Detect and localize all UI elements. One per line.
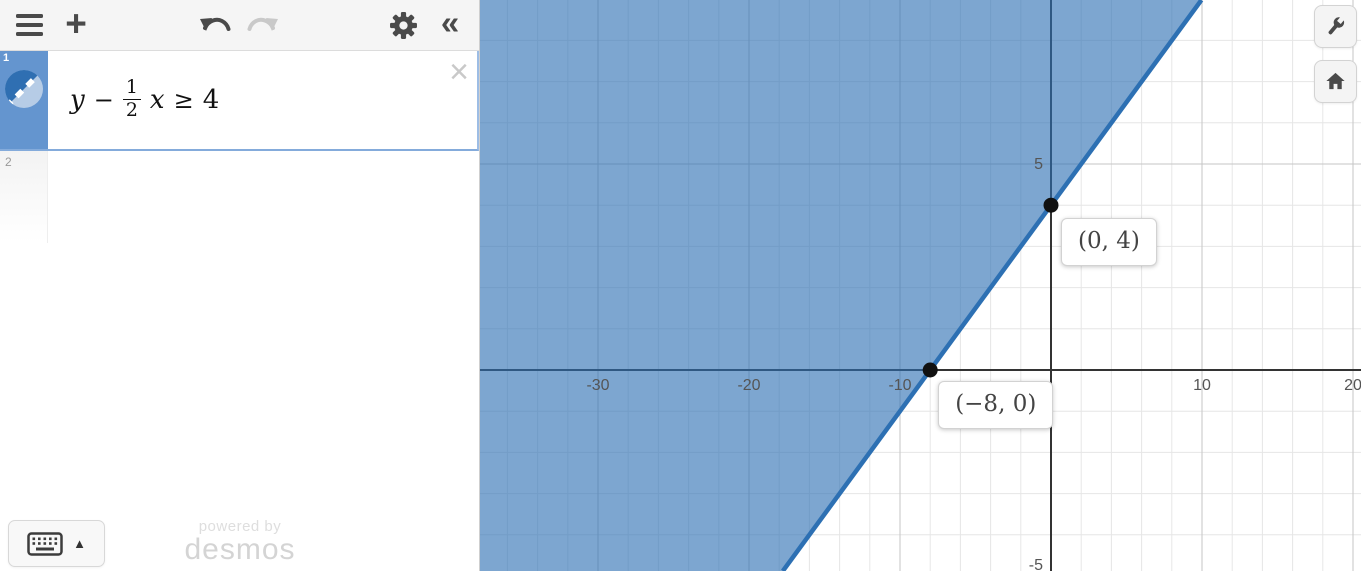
collapse-panel-button[interactable]: « xyxy=(427,0,473,50)
plus-icon: + xyxy=(65,5,87,42)
desmos-app: + xyxy=(0,0,1361,571)
axis-tick-label: -10 xyxy=(888,377,911,394)
expression-panel: + xyxy=(0,0,480,571)
menu-button[interactable] xyxy=(6,0,52,50)
var-x: x xyxy=(150,85,165,115)
chevron-double-left-icon: « xyxy=(441,6,459,39)
graph-region: -30-20-1010205-5 (−8, 0)(0, 4) xyxy=(480,0,1361,571)
expression-toolbar: + xyxy=(0,0,479,51)
axis-tick-label: -5 xyxy=(1029,557,1043,571)
axis-tick-label: -30 xyxy=(586,377,609,394)
hamburger-icon xyxy=(16,14,43,36)
keyboard-toggle-button[interactable]: ▲ xyxy=(8,520,105,567)
delete-expression-button[interactable]: × xyxy=(449,55,469,89)
rhs-value: 4 xyxy=(203,85,220,115)
undo-icon xyxy=(199,12,231,38)
expression-content[interactable]: y − 1 2 x ≥ 4 × xyxy=(48,51,477,149)
fraction-denominator: 2 xyxy=(126,100,138,121)
expression-index: 1 xyxy=(3,52,9,64)
add-expression-button[interactable]: + xyxy=(53,0,99,50)
inequality-style-icon[interactable] xyxy=(4,69,44,109)
settings-button[interactable] xyxy=(380,0,426,50)
graph-settings-button[interactable] xyxy=(1314,5,1357,48)
geq-sign: ≥ xyxy=(174,86,194,114)
expression-math[interactable]: y − 1 2 x ≥ 4 xyxy=(70,78,219,122)
inequality-region xyxy=(480,0,1201,571)
expression-row-1-gutter[interactable]: 1 xyxy=(0,51,48,149)
axis-tick-label: -20 xyxy=(737,377,760,394)
wrench-icon xyxy=(1324,15,1347,38)
watermark-desmos: desmos xyxy=(150,533,330,567)
graph-point[interactable] xyxy=(1044,198,1059,213)
expression-index: 2 xyxy=(5,155,12,169)
home-icon xyxy=(1324,70,1347,93)
fraction-numerator: 1 xyxy=(123,77,141,99)
fraction: 1 2 xyxy=(123,77,141,121)
graph-point[interactable] xyxy=(923,363,938,378)
graph-canvas[interactable]: -30-20-1010205-5 xyxy=(480,0,1361,571)
desmos-watermark: powered by desmos xyxy=(150,518,330,567)
axis-tick-label: 10 xyxy=(1193,377,1211,394)
expression-row-2-gutter: 2 xyxy=(0,151,48,243)
expression-row-2[interactable]: 2 xyxy=(0,151,479,243)
minus-sign: − xyxy=(94,86,114,114)
caret-up-icon: ▲ xyxy=(73,536,86,551)
watermark-powered-by: powered by xyxy=(150,518,330,535)
gear-icon xyxy=(389,11,418,40)
undo-button[interactable] xyxy=(192,0,238,50)
var-y: y xyxy=(70,85,85,115)
redo-button[interactable] xyxy=(240,0,286,50)
redo-icon xyxy=(247,12,279,38)
home-button[interactable] xyxy=(1314,60,1357,103)
expression-row-1[interactable]: 1 y − 1 2 x ≥ 4 xyxy=(0,51,479,151)
axis-tick-label: 5 xyxy=(1034,156,1043,173)
axis-tick-label: 20 xyxy=(1344,377,1361,394)
keyboard-icon xyxy=(27,532,63,556)
